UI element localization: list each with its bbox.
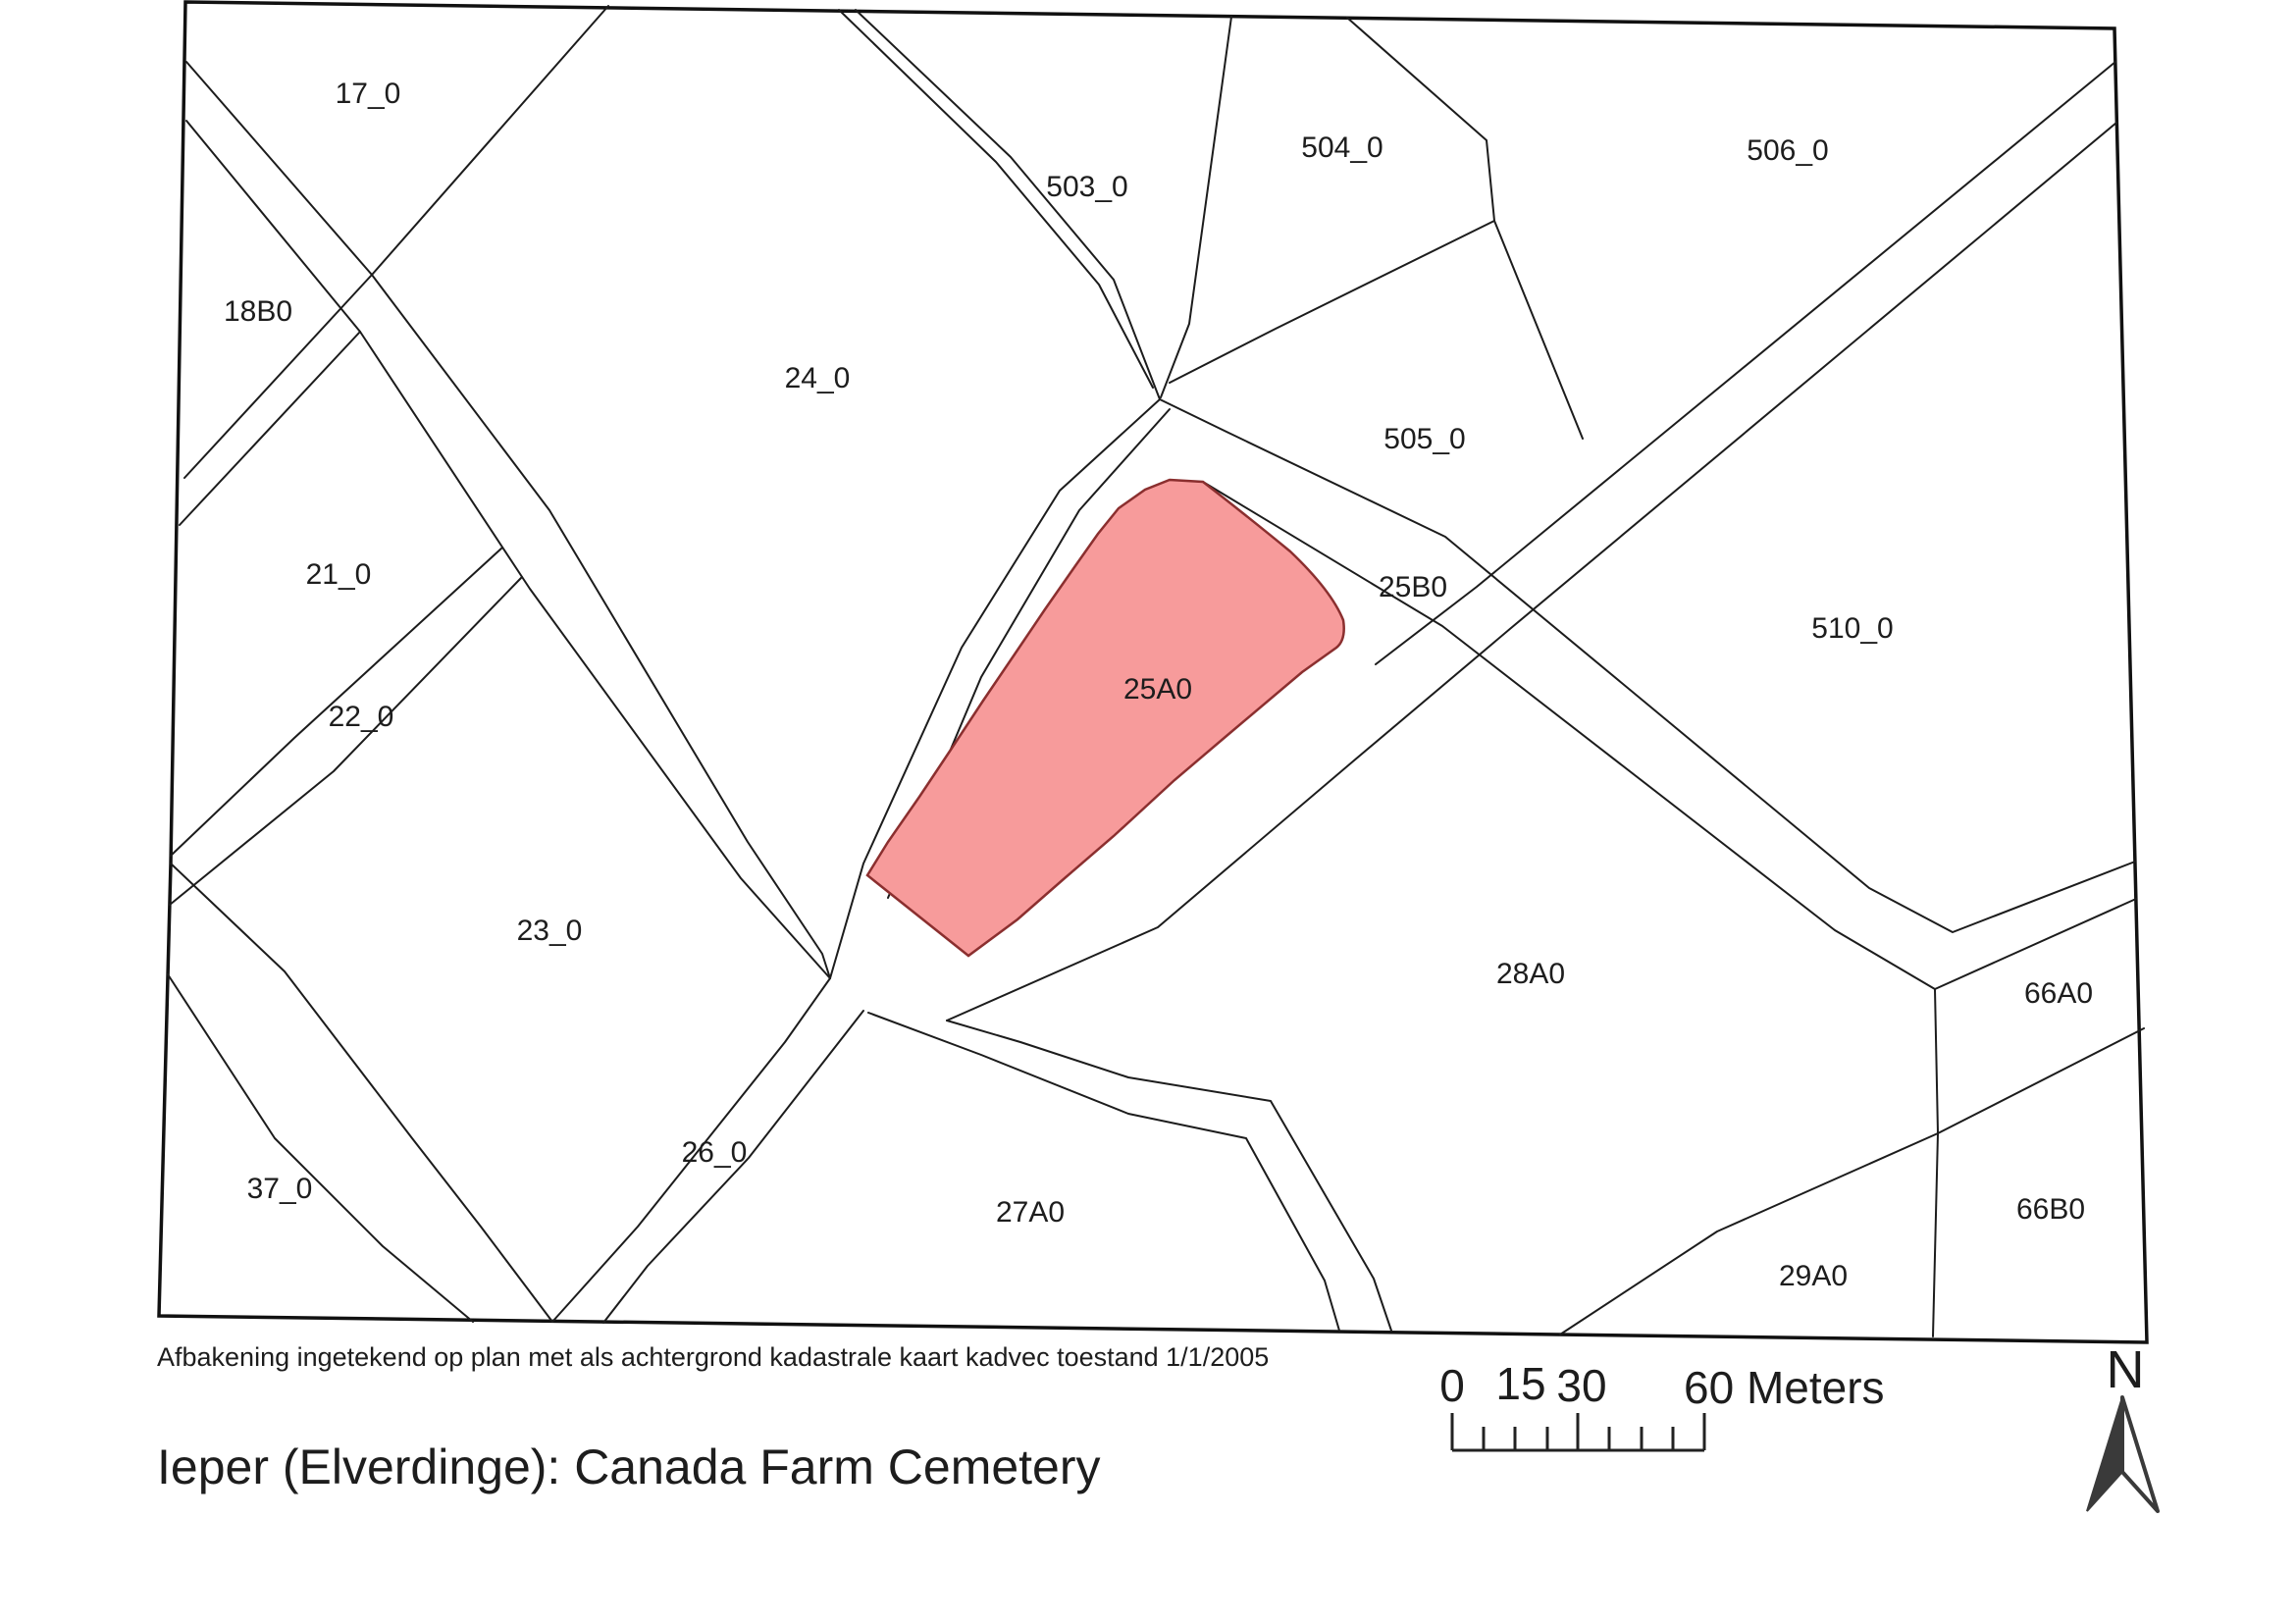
parcel-label-28A0: 28A0: [1496, 958, 1565, 990]
parcel-label-504_0: 504_0: [1301, 131, 1383, 164]
highlighted-parcel-25A0: [867, 480, 1344, 956]
parcel-label-29A0: 29A0: [1779, 1260, 1848, 1292]
cadastral-map: 17_018B021_022_023_037_024_0503_0504_050…: [0, 0, 2296, 1623]
parcel-label-25B0: 25B0: [1379, 571, 1447, 603]
parcel-label-21_0: 21_0: [306, 558, 372, 591]
scale-label-60-meters: 60 Meters: [1684, 1362, 1885, 1413]
parcel-label-22_0: 22_0: [329, 701, 394, 733]
north-label: N: [2107, 1340, 2145, 1399]
parcel-label-27A0: 27A0: [996, 1196, 1065, 1229]
parcel-label-66B0: 66B0: [2016, 1193, 2085, 1226]
parcel-label-510_0: 510_0: [1811, 612, 1893, 645]
scale-label-15: 15: [1495, 1358, 1545, 1409]
map-caption: Afbakening ingetekend op plan met als ac…: [157, 1342, 1269, 1372]
scale-bar: [1452, 1413, 1704, 1450]
parcel-label-23_0: 23_0: [517, 915, 583, 947]
map-title: Ieper (Elverdinge): Canada Farm Cemetery: [157, 1440, 1101, 1494]
parcel-label-506_0: 506_0: [1747, 134, 1828, 167]
parcel-label-18B0: 18B0: [224, 295, 292, 328]
scale-label-0: 0: [1439, 1360, 1465, 1411]
north-arrow-icon: [2087, 1397, 2158, 1511]
parcel-label-17_0: 17_0: [336, 78, 401, 110]
parcel-label-26_0: 26_0: [682, 1136, 748, 1169]
parcel-label-66A0: 66A0: [2024, 977, 2093, 1010]
parcel-label-24_0: 24_0: [785, 362, 851, 394]
parcel-label-25A0: 25A0: [1123, 673, 1192, 706]
cadastral-map-page: 17_018B021_022_023_037_024_0503_0504_050…: [0, 0, 2296, 1623]
parcel-label-37_0: 37_0: [247, 1173, 313, 1205]
parcel-label-505_0: 505_0: [1383, 423, 1465, 455]
parcel-25A0-shape: [867, 480, 1344, 956]
parcel-label-503_0: 503_0: [1046, 171, 1127, 203]
scale-label-30: 30: [1556, 1360, 1606, 1411]
